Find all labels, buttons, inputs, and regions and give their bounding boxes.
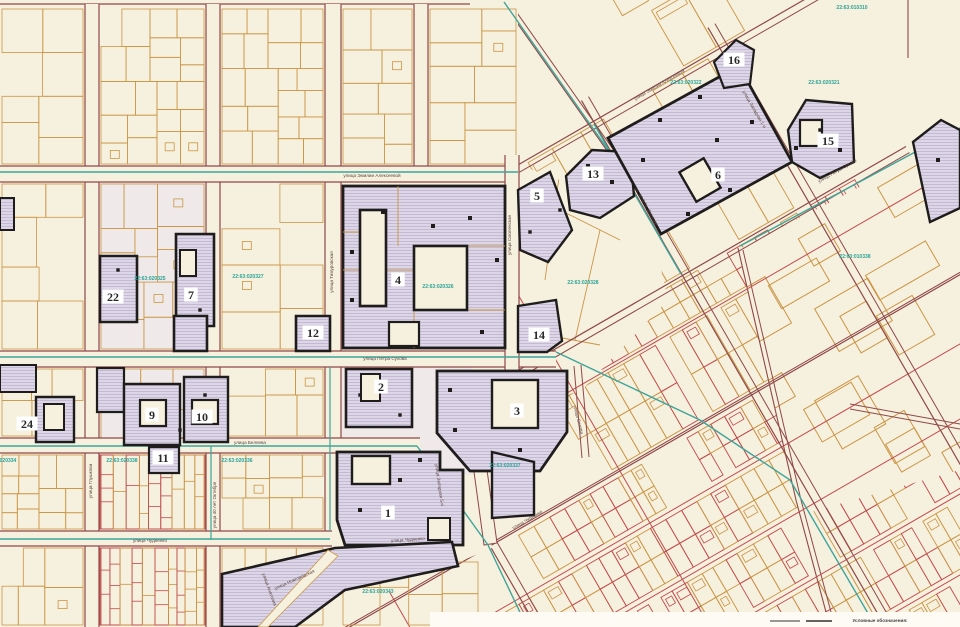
svg-text:улица Петра Сухова: улица Петра Сухова [363,356,407,361]
svg-text:улица Смоленская: улица Смоленская [507,214,512,255]
svg-text:улица 40 лет Октября: улица 40 лет Октября [212,481,217,528]
svg-text:22:63:020343: 22:63:020343 [362,589,393,595]
svg-text:22:63:020337: 22:63:020337 [489,463,520,469]
svg-text:14: 14 [533,328,545,342]
svg-text:улица Чудненко: улица Чудненко [133,538,167,543]
svg-text:улица Эмилии Алексеевой: улица Эмилии Алексеевой [343,172,401,178]
svg-text:10: 10 [196,410,208,424]
svg-text:020334: 020334 [0,458,17,464]
svg-text:улица Глушкова: улица Глушкова [88,463,93,498]
svg-text:15: 15 [822,134,834,148]
svg-text:22: 22 [107,290,119,304]
svg-text:24: 24 [21,417,33,431]
svg-text:4: 4 [395,273,401,287]
svg-text:22:63:010338: 22:63:010338 [839,254,870,260]
svg-text:5: 5 [534,189,540,203]
svg-text:22:63:020336: 22:63:020336 [221,458,252,464]
svg-text:Условные обозначения:: Условные обозначения: [852,617,908,623]
svg-text:22:63:020338: 22:63:020338 [106,458,137,464]
svg-text:1: 1 [385,506,391,520]
svg-text:16: 16 [728,53,740,67]
svg-text:22:63:020328: 22:63:020328 [567,280,598,286]
svg-text:7: 7 [188,288,194,302]
svg-text:22:63:020327: 22:63:020327 [232,274,263,280]
svg-text:22:63:020321: 22:63:020321 [808,80,839,86]
svg-text:11: 11 [157,451,168,465]
svg-text:12: 12 [307,326,319,340]
svg-text:22:63:010310: 22:63:010310 [836,5,867,11]
svg-text:6: 6 [715,168,721,182]
svg-text:22:63:020325: 22:63:020325 [134,276,165,282]
svg-text:2: 2 [378,380,384,394]
svg-text:улица Беляева: улица Беляева [234,440,266,445]
svg-text:9: 9 [149,408,155,422]
svg-text:22:63:020322: 22:63:020322 [670,80,701,86]
svg-text:22:63:020326: 22:63:020326 [422,284,453,290]
svg-text:13: 13 [587,167,599,181]
svg-text:3: 3 [514,404,520,418]
svg-text:улица Тимуровская: улица Тимуровская [329,251,334,293]
